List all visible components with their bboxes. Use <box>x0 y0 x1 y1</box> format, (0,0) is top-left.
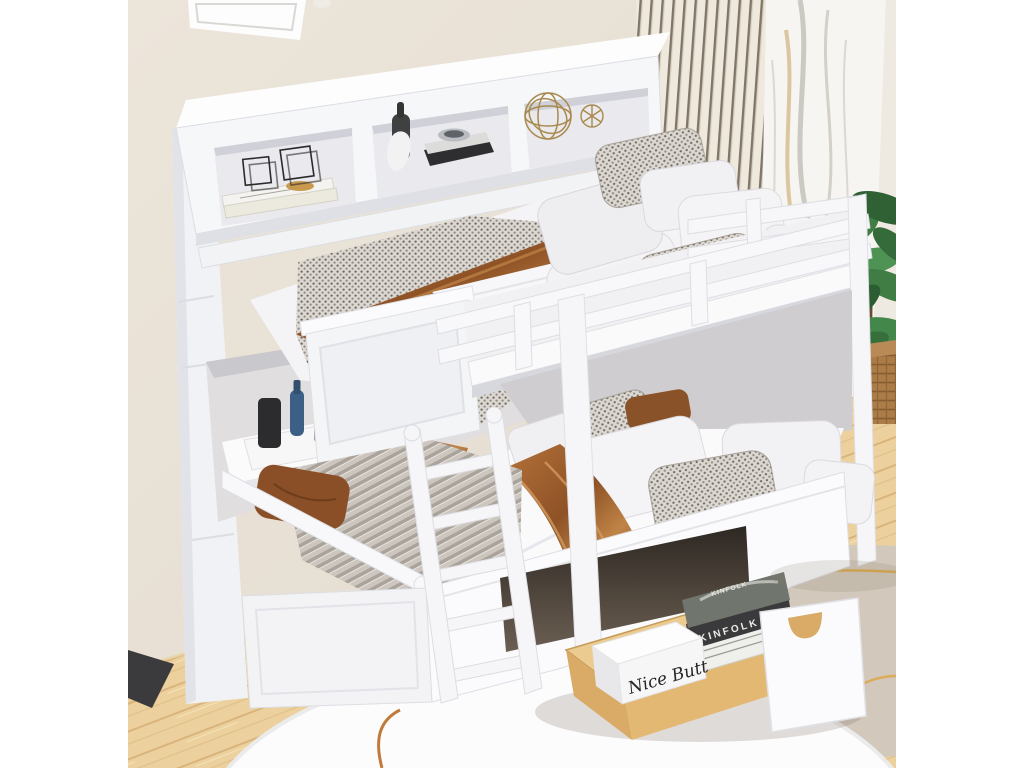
blue-bottle <box>290 390 304 436</box>
drawer-front-panel[interactable] <box>760 598 866 732</box>
product-photo: KINFOLK KINFOLK Nice Butt <box>0 0 1024 768</box>
right-margin <box>896 0 1024 768</box>
black-vase <box>258 398 281 448</box>
left-margin <box>0 0 128 768</box>
bedroom-scene: KINFOLK KINFOLK Nice Butt <box>0 0 1024 768</box>
